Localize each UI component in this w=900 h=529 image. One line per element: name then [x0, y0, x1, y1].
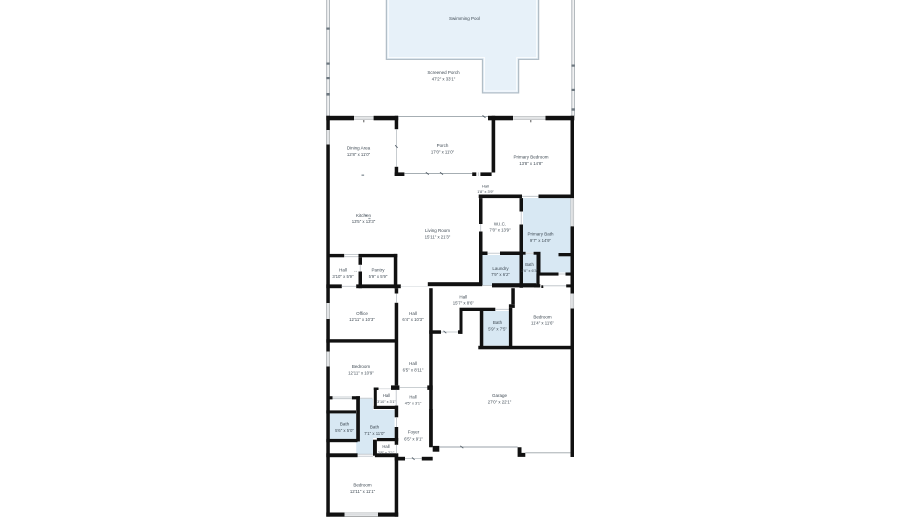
- svg-text:Swimming Pool: Swimming Pool: [449, 16, 480, 21]
- svg-text:47'2" x 33'1": 47'2" x 33'1": [432, 77, 456, 82]
- svg-text:Bath: Bath: [370, 425, 380, 430]
- svg-text:Hall: Hall: [409, 311, 417, 316]
- svg-text:6'5" x 8'11": 6'5" x 8'11": [403, 368, 424, 373]
- svg-text:17'0" x 11'0": 17'0" x 11'0": [431, 150, 455, 155]
- svg-text:27'0" x 22'1": 27'0" x 22'1": [488, 400, 512, 405]
- svg-text:↔: ↔: [354, 268, 358, 273]
- svg-text:7'9" x 6'2": 7'9" x 6'2": [491, 272, 510, 277]
- svg-text:6'5" x 9'1": 6'5" x 9'1": [404, 436, 423, 441]
- svg-text:Bedroom: Bedroom: [533, 314, 552, 319]
- svg-text:2'8" x 2'1": 2'8" x 2'1": [378, 451, 395, 455]
- svg-text:Bedroom: Bedroom: [352, 364, 371, 369]
- svg-text:11'4" x 11'6": 11'4" x 11'6": [531, 321, 554, 326]
- svg-text:5'6" x 5'0": 5'6" x 5'0": [335, 428, 354, 433]
- svg-text:3'10" x 3'1": 3'10" x 3'1": [377, 400, 396, 404]
- svg-text:Hall: Hall: [409, 361, 417, 366]
- svg-text:12'11" x 10'3": 12'11" x 10'3": [349, 317, 375, 322]
- svg-text:Living Room: Living Room: [425, 228, 450, 233]
- svg-text:Hall: Hall: [382, 444, 389, 449]
- svg-text:1'8" x 3'9": 1'8" x 3'9": [477, 190, 494, 194]
- svg-text:Garage: Garage: [492, 393, 508, 398]
- svg-text:7'0" x 13'9": 7'0" x 13'9": [489, 228, 511, 233]
- svg-text:Bath: Bath: [340, 422, 350, 427]
- svg-text:W.I.C.: W.I.C.: [494, 221, 506, 226]
- svg-text:Office: Office: [356, 311, 368, 316]
- svg-text:2'6" x 6'3": 2'6" x 6'3": [521, 269, 538, 273]
- svg-text:Hall: Hall: [339, 268, 347, 273]
- svg-text:Primary Bath: Primary Bath: [527, 232, 554, 237]
- svg-text:12'11" x 10'9": 12'11" x 10'9": [348, 370, 374, 375]
- svg-text:7'1" x 11'0": 7'1" x 11'0": [364, 431, 385, 436]
- svg-text:15'7" x 8'6": 15'7" x 8'6": [453, 301, 475, 306]
- svg-text:Bath: Bath: [525, 262, 534, 267]
- svg-text:12'8" x 11'0": 12'8" x 11'0": [347, 152, 371, 157]
- svg-text:Dining Area: Dining Area: [347, 146, 371, 151]
- svg-text:5'9" x 7'5": 5'9" x 7'5": [488, 327, 507, 332]
- svg-text:6'4" x 10'3": 6'4" x 10'3": [402, 317, 424, 322]
- svg-text:5'9" x 5'9": 5'9" x 5'9": [369, 274, 388, 279]
- svg-text:Hall: Hall: [383, 393, 390, 398]
- svg-text:Bedroom: Bedroom: [353, 483, 372, 488]
- svg-text:Primary Bedroom: Primary Bedroom: [513, 154, 548, 159]
- svg-text:Laundry: Laundry: [492, 266, 509, 271]
- svg-text:Screened Porch: Screened Porch: [427, 70, 460, 75]
- svg-text:Hall: Hall: [459, 294, 467, 299]
- svg-text:Foyer: Foyer: [408, 430, 420, 435]
- svg-text:Hall: Hall: [409, 394, 416, 399]
- svg-text:15'11" x 21'3": 15'11" x 21'3": [425, 235, 451, 240]
- svg-text:12'11" x 11'1": 12'11" x 11'1": [350, 489, 376, 494]
- svg-text:Hall: Hall: [482, 183, 489, 188]
- svg-text:Porch: Porch: [437, 143, 449, 148]
- svg-text:13'5" x 13'3": 13'5" x 13'3": [352, 219, 376, 224]
- svg-text:3'10" x 5'9": 3'10" x 5'9": [332, 274, 354, 279]
- svg-text:Kitchen: Kitchen: [356, 213, 372, 218]
- svg-text:4'5" x 3'1": 4'5" x 3'1": [405, 401, 422, 405]
- svg-text:Bath: Bath: [493, 320, 503, 325]
- svg-text:9'7" x 14'9": 9'7" x 14'9": [530, 238, 552, 243]
- svg-text:13'8" x 14'8": 13'8" x 14'8": [519, 161, 543, 166]
- svg-text:Pantry: Pantry: [371, 268, 385, 273]
